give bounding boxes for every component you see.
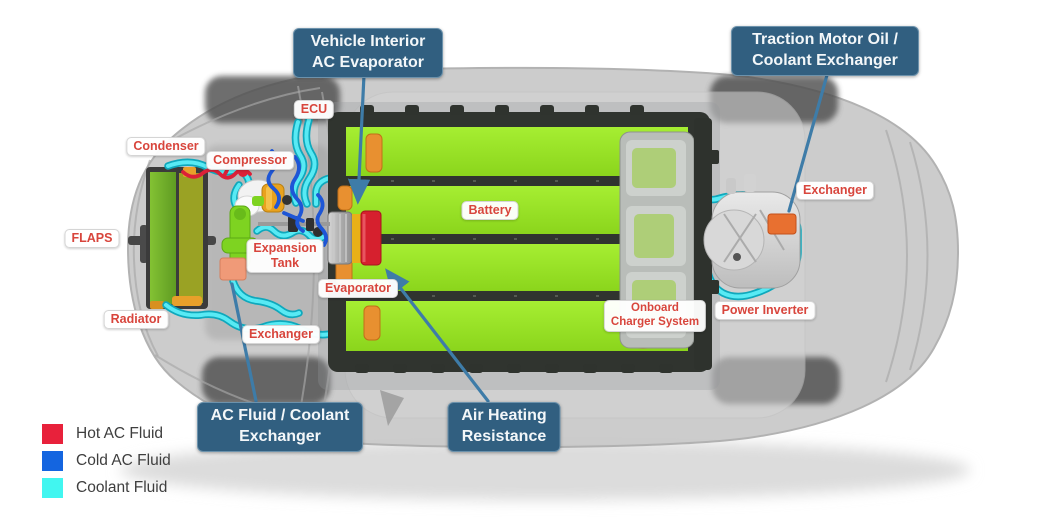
callout-air-heating-resistance: Air Heating Resistance (448, 402, 561, 452)
label-battery: Battery (461, 201, 518, 220)
label-power-inverter: Power Inverter (715, 301, 816, 320)
ev-thermal-diagram: Vehicle Interior AC Evaporator Traction … (0, 0, 1040, 520)
cold-ac-fluid-label: Cold AC Fluid (76, 452, 171, 470)
label-onboard-charger-system: Onboard Charger System (604, 300, 706, 332)
ac-coolant-exchanger-block (220, 258, 246, 280)
condenser-core (179, 173, 203, 303)
evaporator-assembly (328, 211, 381, 265)
label-condenser: Condenser (126, 137, 205, 156)
legend: Hot AC Fluid Cold AC Fluid Coolant Fluid (42, 424, 171, 505)
legend-item-cold-ac-fluid: Cold AC Fluid (42, 451, 171, 471)
label-expansion-tank: Expansion Tank (246, 239, 323, 273)
callout-traction-motor-oil-coolant-exchanger: Traction Motor Oil / Coolant Exchanger (731, 26, 919, 76)
callout-vehicle-interior-ac-evaporator: Vehicle Interior AC Evaporator (293, 28, 443, 78)
coolant-fluid-swatch (42, 478, 63, 498)
legend-item-hot-ac-fluid: Hot AC Fluid (42, 424, 171, 444)
label-compressor: Compressor (206, 151, 294, 170)
label-evaporator: Evaporator (318, 279, 398, 298)
wheel-front-right (202, 357, 330, 404)
label-ecu: ECU (294, 100, 334, 119)
motor-oil-exchanger-block (768, 214, 796, 234)
hot-ac-fluid-label: Hot AC Fluid (76, 425, 163, 443)
evaporator-stripe (352, 214, 361, 263)
coolant-fluid-label: Coolant Fluid (76, 479, 167, 497)
legend-item-coolant-fluid: Coolant Fluid (42, 478, 171, 498)
label-exchanger-rear: Exchanger (796, 181, 874, 200)
cold-ac-fluid-swatch (42, 451, 63, 471)
radiator-core (150, 172, 176, 304)
label-exchanger-front: Exchanger (242, 325, 320, 344)
hot-ac-fluid-swatch (42, 424, 63, 444)
callout-ac-fluid-coolant-exchanger: AC Fluid / Coolant Exchanger (197, 402, 363, 452)
label-flaps: FLAPS (65, 229, 120, 248)
label-radiator: Radiator (104, 310, 169, 329)
